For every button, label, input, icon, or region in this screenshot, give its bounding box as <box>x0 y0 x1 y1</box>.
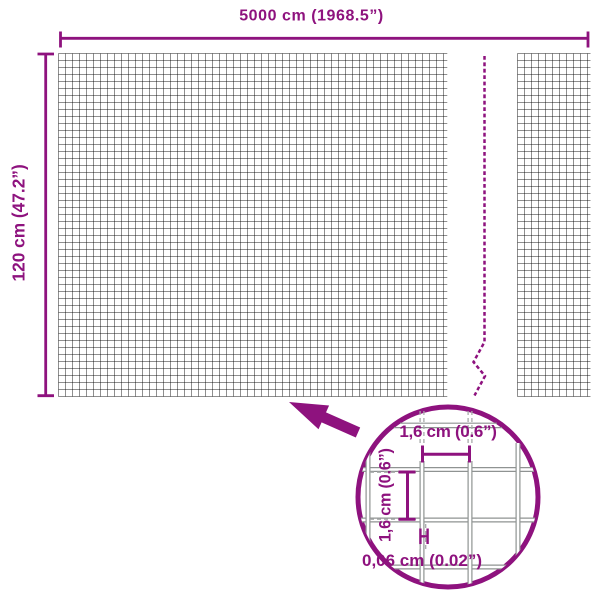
svg-text:1,6 cm (0.6”): 1,6 cm (0.6”) <box>399 422 496 441</box>
svg-text:1,6 cm (0.6”): 1,6 cm (0.6”) <box>377 448 395 542</box>
svg-text:120 cm (47.2”): 120 cm (47.2”) <box>9 164 29 281</box>
svg-text:5000 cm (1968.5”): 5000 cm (1968.5”) <box>239 7 384 24</box>
svg-text:0,06 cm (0.02”): 0,06 cm (0.02”) <box>362 551 482 570</box>
